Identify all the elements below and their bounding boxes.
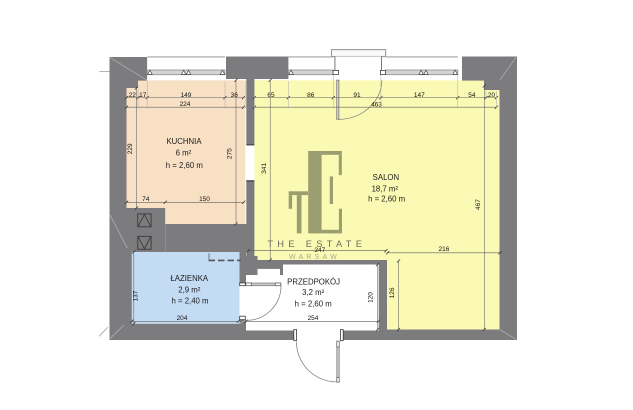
svg-text:36: 36 bbox=[231, 92, 239, 99]
svg-text:18,7 m²: 18,7 m² bbox=[372, 184, 399, 193]
svg-text:137: 137 bbox=[132, 290, 139, 301]
svg-text:120: 120 bbox=[367, 292, 374, 303]
svg-text:SALON: SALON bbox=[373, 173, 399, 182]
svg-text:150: 150 bbox=[199, 196, 210, 203]
svg-text:216: 216 bbox=[438, 246, 449, 253]
svg-text:WARSAW: WARSAW bbox=[289, 254, 340, 261]
svg-text:204: 204 bbox=[177, 315, 188, 322]
svg-text:KUCHNIA: KUCHNIA bbox=[166, 137, 202, 146]
svg-text:2,9 m²: 2,9 m² bbox=[178, 286, 200, 295]
svg-text:h = 2,60 m: h = 2,60 m bbox=[166, 161, 203, 170]
svg-text:126: 126 bbox=[389, 287, 396, 298]
svg-text:54: 54 bbox=[468, 92, 476, 99]
svg-text:224: 224 bbox=[180, 101, 191, 108]
svg-text:467: 467 bbox=[475, 199, 482, 210]
svg-text:247: 247 bbox=[314, 247, 325, 254]
svg-text:22: 22 bbox=[129, 92, 137, 99]
svg-text:h = 2,60 m: h = 2,60 m bbox=[295, 300, 332, 309]
svg-text:463: 463 bbox=[371, 101, 382, 108]
svg-text:91: 91 bbox=[353, 92, 361, 99]
svg-text:229: 229 bbox=[127, 143, 134, 154]
svg-text:65: 65 bbox=[267, 92, 275, 99]
svg-text:6 m²: 6 m² bbox=[176, 149, 192, 158]
svg-text:86: 86 bbox=[307, 92, 315, 99]
svg-text:254: 254 bbox=[308, 315, 319, 322]
svg-text:74: 74 bbox=[142, 196, 150, 203]
svg-text:h = 2,60 m: h = 2,60 m bbox=[368, 195, 405, 204]
svg-text:h = 2,40 m: h = 2,40 m bbox=[171, 297, 208, 306]
svg-text:3,2 m²: 3,2 m² bbox=[302, 288, 324, 297]
svg-text:PRZEDPOKÓJ: PRZEDPOKÓJ bbox=[287, 278, 340, 287]
svg-text:147: 147 bbox=[414, 92, 425, 99]
svg-text:275: 275 bbox=[227, 148, 234, 159]
svg-text:149: 149 bbox=[181, 92, 192, 99]
svg-text:20: 20 bbox=[488, 92, 496, 99]
svg-text:17: 17 bbox=[139, 92, 147, 99]
svg-text:ŁAZIENKA: ŁAZIENKA bbox=[170, 274, 208, 283]
svg-text:341: 341 bbox=[261, 163, 268, 174]
